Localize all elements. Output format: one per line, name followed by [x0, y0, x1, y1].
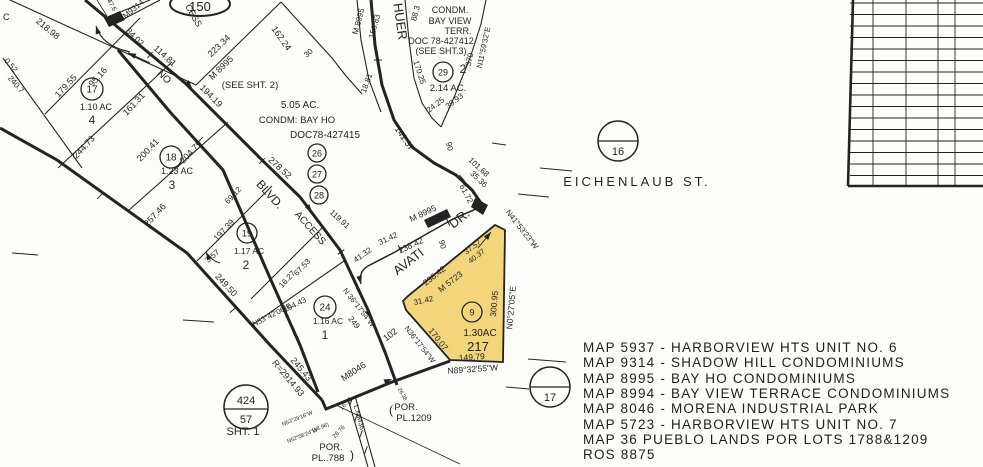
map-label: M8046 [339, 360, 368, 383]
map-label: 31.42 [377, 230, 399, 247]
map-line [322, 400, 336, 409]
map-label: 200.41 [135, 136, 161, 163]
map-label: POR. [319, 442, 342, 453]
map-line [183, 320, 214, 322]
map-label: 61.72 [458, 183, 476, 205]
map-label: PL.1209 [396, 413, 431, 424]
map-label: N89°32'55"W [447, 362, 498, 376]
map-label: 2 [243, 258, 250, 272]
map-label: 161.31 [121, 90, 147, 117]
map-line [12, 253, 38, 255]
legend-item: ROS 8875 [583, 447, 656, 462]
arrowhead [93, 25, 101, 34]
map-label: 18.81 [359, 72, 374, 94]
map-line [540, 168, 572, 171]
map-label: 88.3 [409, 4, 422, 22]
map-line [518, 194, 549, 197]
map-label: 204.79 [178, 138, 204, 165]
map-label: 3.57 [204, 247, 222, 264]
map-label: 3 [169, 178, 176, 192]
map-label: 1.23 AC [161, 166, 194, 176]
map-label: CONDM: BAY HO [259, 115, 335, 126]
map-label: 1.10 AC [80, 102, 113, 112]
lot-marker-label: 9 [469, 308, 474, 318]
map-label: BAY VIEW [429, 16, 472, 26]
map-label: 90 [444, 141, 455, 152]
legend-item: MAP 8995 - BAY HO CONDOMINIUMS [583, 371, 856, 386]
map-label: N11°59'32"E [475, 26, 493, 69]
survey-tick [97, 193, 103, 199]
map-label: TERR. [445, 26, 472, 36]
map-label: 141.37 [392, 124, 416, 152]
map-label: 119.91 [328, 208, 352, 231]
map-label: 26.38 [396, 387, 408, 402]
map-label: (SEE SHT. 2) [222, 80, 279, 91]
lot-marker-label: 26 [312, 149, 322, 159]
map-label: M9314 [121, 0, 146, 20]
map-label: 218.98 [34, 16, 62, 41]
reference-circle-label: 17 [544, 392, 556, 404]
map-label: C [3, 12, 10, 22]
document-page: MAP 5937 - HARBORVIEW HTS UNIT NO. 6 MAP… [0, 0, 983, 467]
map-label: 1 [322, 328, 329, 342]
map-label: ( [389, 403, 393, 417]
map-label: 67.53 [292, 257, 313, 278]
parcel-map-sheet: MAP 5937 - HARBORVIEW HTS UNIT NO. 6 MAP… [0, 0, 983, 467]
reference-circle-label: 424 [237, 395, 255, 407]
map-label: 1.16 AC [313, 316, 343, 326]
map-label: M 8995 [351, 7, 367, 36]
map-label: 26.76 [332, 424, 347, 440]
grid-border [848, 0, 853, 186]
map-label: PL..788 [312, 453, 345, 464]
map-label: 69.12 [223, 185, 244, 206]
map-line [528, 359, 566, 362]
map-label: 244.73 [71, 133, 97, 160]
map-label: 30 [302, 46, 315, 59]
map-label: DR. [446, 206, 473, 232]
map-label: 24.25 [425, 95, 447, 115]
legend-item: MAP 5723 - HARBORVIEW HTS UNIT NO. 7 [583, 417, 898, 432]
map-label: 257.46 [142, 201, 168, 228]
lot-marker-label: 28 [314, 191, 324, 201]
map-label: 1.30AC [463, 328, 496, 339]
map-label: 249 [346, 314, 362, 330]
map-label: 1.17 AC [234, 246, 264, 256]
map-line [281, 2, 362, 94]
map-label: 240.7 [6, 74, 26, 95]
leader-line [360, 266, 368, 284]
map-label: ) [350, 448, 354, 462]
map-label: 162.24 [269, 24, 293, 52]
map-label: 194.19 [198, 83, 225, 110]
lot-marker-label: 27 [312, 170, 322, 180]
lot-marker-label: 19 [242, 229, 252, 239]
map-label: EICHENLAUB ST. [563, 174, 710, 189]
map-label: SHT. 1 [226, 426, 259, 438]
map-label: CONDM. [432, 5, 469, 15]
map-label: (SEE SHT.3) [415, 46, 466, 56]
lot-marker-label: 29 [438, 68, 448, 78]
map-label: 0.52 [2, 57, 19, 75]
map-label: 2.14 AC. [430, 83, 466, 94]
leader-line [96, 26, 130, 52]
arrowhead [356, 276, 363, 285]
map-label: 5.05 AC. [281, 100, 319, 111]
map-label: 197.39 [211, 217, 236, 243]
survey-tick [365, 446, 368, 454]
map-label: 41.32 [352, 245, 374, 264]
lot-marker-label: 24 [319, 303, 331, 314]
legend-item: MAP 5937 - HARBORVIEW HTS UNIT NO. 6 [583, 340, 898, 355]
map-label: 4 [89, 113, 96, 127]
map-label: DOC78-427415 [290, 130, 360, 141]
map-label: N0°27'05"E [504, 285, 518, 330]
map-label: 370 [464, 51, 476, 66]
lot-marker-label: 18 [165, 153, 177, 164]
map-label: DOC 78-427412 [408, 36, 474, 46]
legend-item: MAP 9314 - SHADOW HILL CONDOMINIUMS [583, 355, 905, 370]
map-label: (18.98) [311, 422, 330, 434]
map-label: 90 [437, 239, 448, 250]
map-label: HUER [390, 2, 410, 41]
map-label: 194.43 [282, 295, 308, 314]
map-label: 47.6 [105, 0, 118, 13]
map-label: N41°53'23"W [504, 208, 541, 251]
reference-circle-label: 16 [612, 146, 624, 158]
map-line [506, 387, 529, 389]
reference-circle-label: 57 [240, 414, 252, 426]
map-label: POR. [394, 402, 417, 413]
map-label: 179.55 [53, 72, 79, 99]
map-label: 149.79 [458, 351, 485, 363]
map-line [492, 143, 506, 145]
map-label: 102 [381, 326, 399, 343]
map-label: 156.83 [367, 13, 382, 39]
legend-item: MAP 8046 - MORENA INDUSTRIAL PARK [583, 401, 879, 416]
legend-item: MAP 36 PUEBLO LANDS POR LOTS 1788&1209 [583, 432, 929, 447]
legend-item: MAP 8994 - BAY VIEW TERRACE CONDOMINIUMS [583, 386, 950, 401]
survey-tick [230, 307, 236, 312]
map-label: BLVD. [253, 177, 286, 211]
survey-tick [360, 430, 363, 438]
map-label: N53°29'16"W [281, 410, 314, 428]
